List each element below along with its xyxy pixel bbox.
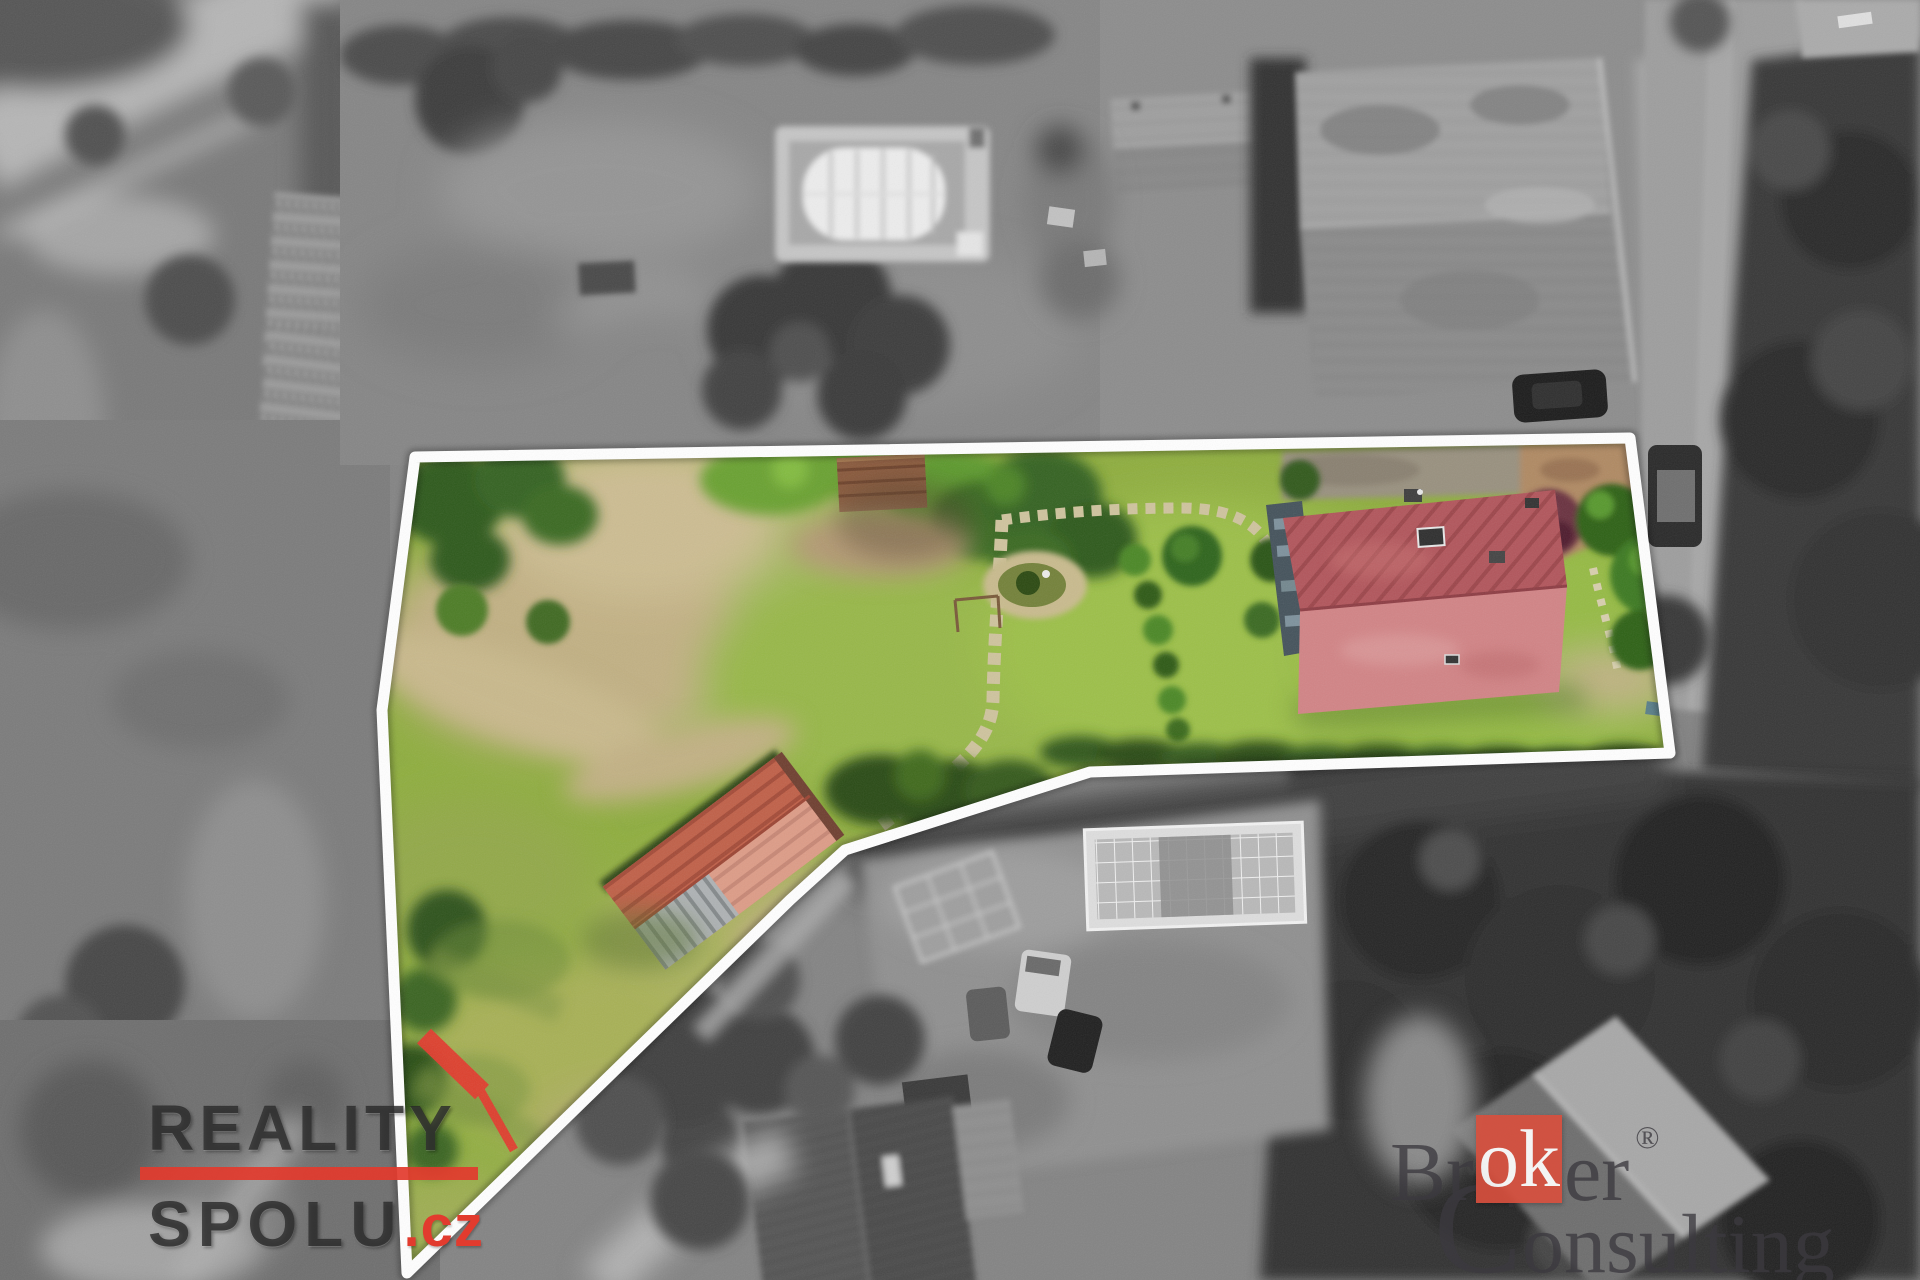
reality-spolu-line2: SPOLU.cz (148, 1192, 484, 1256)
watermark-broker-consulting: Broker® Consulting (1390, 1090, 1835, 1280)
reality-spolu-line2-text: SPOLU (148, 1188, 403, 1260)
registered-mark-icon: ® (1635, 1119, 1659, 1155)
broker-ok-square: ok (1476, 1115, 1562, 1203)
reality-spolu-tld: .cz (403, 1194, 483, 1259)
scene-svg (0, 0, 1920, 1280)
consulting-rest: onsulting (1522, 1198, 1835, 1280)
reality-spolu-red-bar (140, 1167, 478, 1180)
aerial-property-photo: REALITY SPOLU.cz Broker® Consulting (0, 0, 1920, 1280)
reality-spolu-line1: REALITY (148, 1096, 457, 1160)
photo-grain-overlay (0, 0, 1920, 1280)
